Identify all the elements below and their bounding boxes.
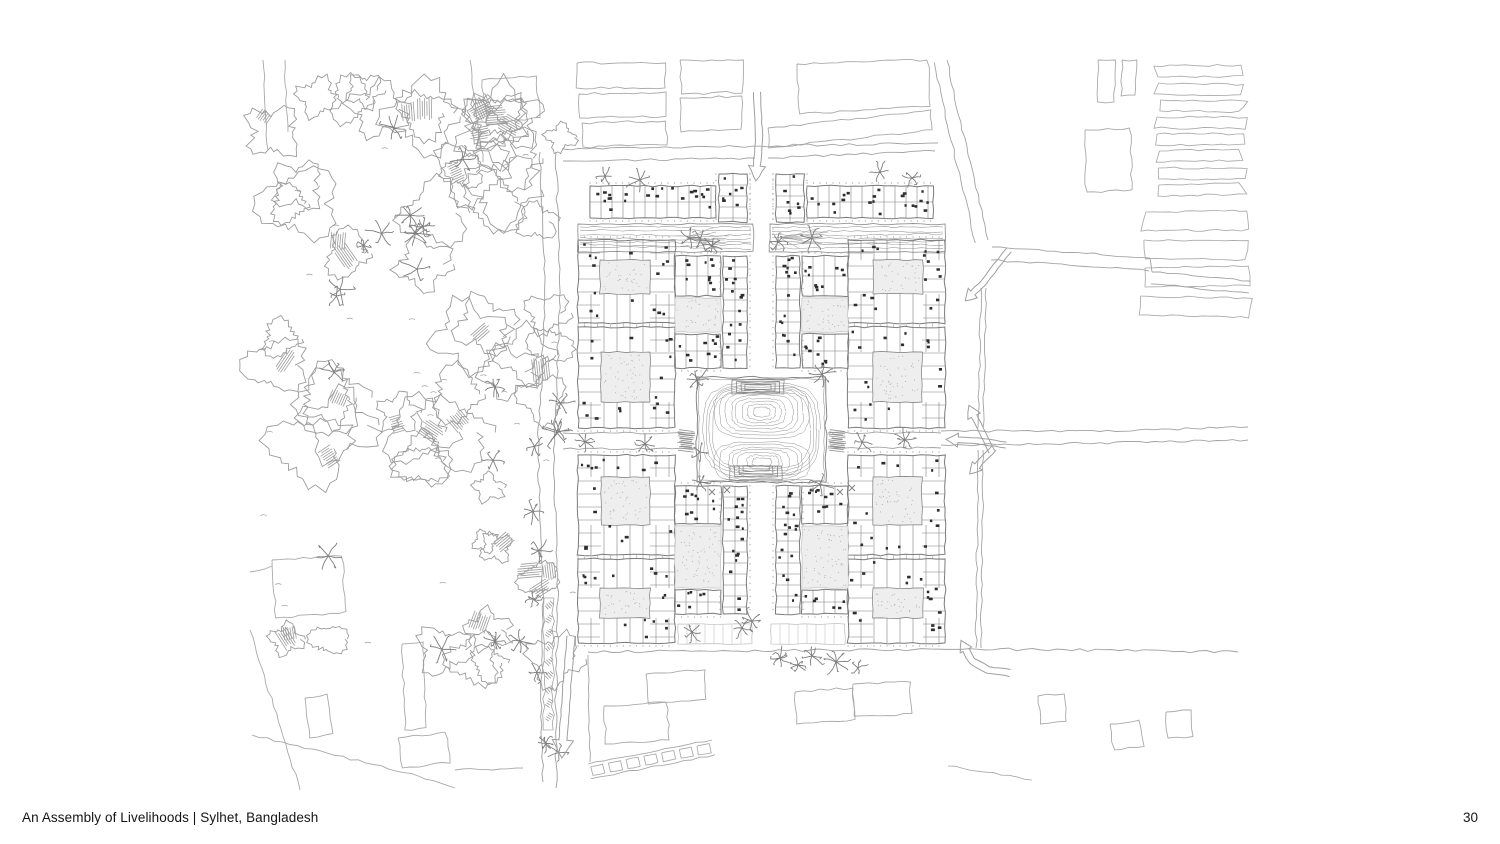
central-pond <box>696 376 855 495</box>
site-plan-drawing <box>0 0 1500 844</box>
portfolio-sheet: An Assembly of Livelihoods | Sylhet, Ban… <box>0 0 1500 844</box>
sheet-caption: An Assembly of Livelihoods | Sylhet, Ban… <box>22 810 318 825</box>
page-number: 30 <box>1463 810 1478 825</box>
central-axis-road <box>563 430 941 452</box>
context-roads <box>538 60 1251 788</box>
forest <box>240 73 587 762</box>
housing-clusters <box>577 173 946 646</box>
